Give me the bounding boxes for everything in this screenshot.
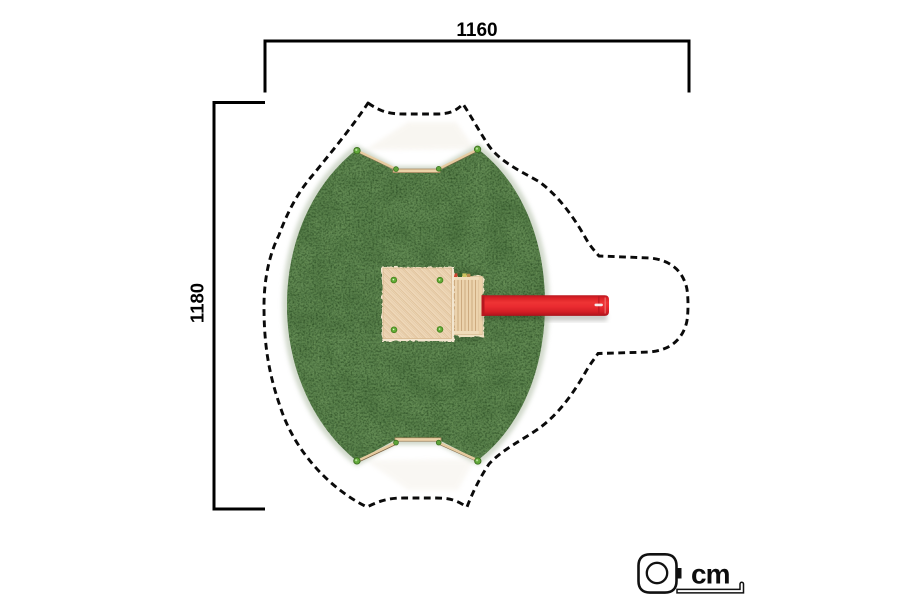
- svg-text:1180: 1180: [187, 283, 208, 323]
- svg-text:cm: cm: [691, 559, 730, 590]
- svg-text:1160: 1160: [456, 20, 497, 41]
